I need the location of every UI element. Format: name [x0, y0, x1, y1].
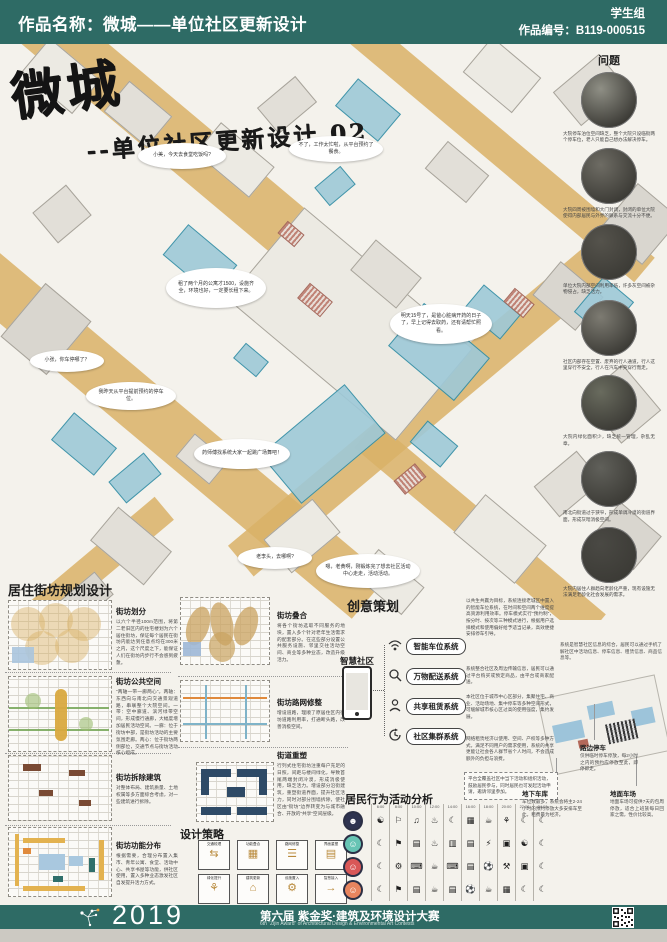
- function-blue: [39, 854, 65, 870]
- strategy-box: 界面重塑▤: [315, 840, 347, 870]
- sleep-icon: ☾: [377, 885, 385, 894]
- activity-cell: ☕: [479, 878, 497, 901]
- sleep-icon: ☾: [377, 839, 385, 848]
- activity-cell: ♨: [425, 809, 443, 832]
- strategy-box: 建筑更新⌂: [237, 874, 269, 904]
- radio-icon: ♫: [413, 816, 419, 825]
- child-avatar: ☺: [345, 882, 361, 898]
- clock-icon: [388, 728, 402, 742]
- connector-line: [384, 645, 385, 736]
- strategy-title: 设计策略: [180, 826, 224, 842]
- function-bar: [23, 886, 85, 891]
- strategy-box: 智慧接入→: [315, 874, 347, 904]
- grey-corridor-photo: [581, 224, 637, 280]
- function-bar: [15, 834, 19, 886]
- activity-cell: ⚐: [389, 809, 407, 832]
- activity-cell: ♫: [407, 809, 425, 832]
- activity-cell: ♨: [425, 832, 443, 855]
- activity-cell: ☾: [533, 855, 551, 878]
- activity-cell: ☾: [371, 878, 389, 901]
- map-public-space: [8, 676, 112, 752]
- nap-icon: ☾: [449, 816, 457, 825]
- problem-caption: 单位大院内部空间利用率低，许多灰空间被杂物侵占，缺乏活力。: [563, 283, 655, 296]
- planning-block-heading: 街坊叠合: [277, 610, 345, 621]
- creative-section-title: 创意策划: [347, 596, 399, 615]
- blue-arrow: [205, 685, 207, 739]
- problem-caption: 大院内居住人群趋向老龄化严重，现有设施无法满足老龄化社会发展的需求。: [563, 586, 655, 599]
- problem-caption: 大院停车泊位空间缺乏，整个大院只设临街两个停车位，老人只能自己想办法解决停车。: [563, 131, 655, 144]
- activity-cell: ☕: [425, 878, 443, 901]
- planning-text-block: 街坊划分以六个半径100m范围，将第二老旧区内的住宅楼划为六个居住街坊，保证每个…: [116, 606, 178, 667]
- phone-home-button: [355, 712, 359, 716]
- strategy-box: 功能叠合▦: [237, 840, 269, 870]
- function-orange: [23, 848, 31, 854]
- activity-cell: ☾: [371, 832, 389, 855]
- callout-body: 车位数最多，系统会将主2-24小时的预约停放大多安排车至此，租费最为经济。: [522, 799, 582, 819]
- function-bar: [23, 838, 65, 843]
- demolished-building: [69, 770, 85, 776]
- elderly-crowd-photo: [581, 527, 637, 583]
- planning-block-heading: 街坊公共空间: [116, 676, 178, 687]
- qr-code: [612, 907, 634, 928]
- activity-cell: ☕: [479, 809, 497, 832]
- planning-section-title: 居住街坊规划设计: [8, 580, 112, 599]
- planning-block-heading: 街道重塑: [277, 750, 345, 761]
- activity-row: ☻☯⚐♫♨☾▦☕⚘☾☾: [345, 809, 551, 832]
- activity-cell: ☾: [533, 878, 551, 901]
- strategy-icon: ☰: [277, 847, 307, 862]
- dotted-divider: [178, 676, 348, 677]
- strategy-icon: →: [316, 881, 346, 896]
- speech-bubble: 明天15号了，是爸心脏病开药的日子了，早上记得去取药，还有请帮忙照看。: [390, 304, 492, 344]
- meeting-icon: ▤: [466, 862, 474, 871]
- activity-cell: ⚘: [497, 809, 515, 832]
- speech-bubble: 我昨天从平台提前预约的停车位。: [86, 382, 176, 410]
- activity-cell: ⚙: [389, 855, 407, 878]
- dotted-divider: [178, 747, 348, 748]
- callout-body: 地面车场可提供7天的包周停放，适合上班族每日回家之需，性价比较高。: [610, 799, 664, 819]
- activity-cell: ☯: [371, 809, 389, 832]
- activity-cell: ▤: [461, 832, 479, 855]
- activity-row: ☺☾⚑▤☕▤⚽☕▦☾☾: [345, 878, 551, 901]
- game-icon: ▦: [502, 885, 510, 894]
- scooter-icon: ⚡: [486, 839, 492, 848]
- planning-text-block: 街坊叠合将各个街坊选取不同服务的地块，置入多个针对老年生活需求的配套部分。在这些…: [277, 610, 345, 664]
- callout-title: 地下车库: [522, 788, 582, 798]
- blue-arrow: [183, 723, 267, 725]
- computer-icon: ⌨: [410, 862, 422, 871]
- activity-cell: ☾: [371, 855, 389, 878]
- system-description: 网络租赁经济以使用、空间、产权等多种方式，满足不同用户的需求使用，系统的共享更能…: [466, 736, 554, 763]
- radius-circle: [55, 629, 89, 663]
- activity-cell: ⚒: [497, 855, 515, 878]
- group-label: 学生组: [611, 5, 646, 21]
- strategy-icon: ⚙: [277, 881, 307, 896]
- messy-green-photo: [581, 375, 637, 431]
- function-teal: [89, 858, 95, 872]
- reading-icon: ▤: [448, 885, 456, 894]
- footer-contest-subtitle: 6th "Zijin Award" of Architectural Desig…: [260, 921, 414, 927]
- plants-icon: ⚘: [503, 816, 511, 825]
- woman-avatar: ☺: [345, 836, 361, 852]
- elderly-avatar: ☻: [345, 813, 361, 829]
- planning-block-body: “两轴一带一廊两心”。两轴：东西向与南北向交通景观道路，串联整个大院空间。一带：…: [116, 689, 178, 757]
- meal-icon: ☕: [431, 885, 439, 894]
- function-blue: [69, 856, 83, 866]
- wifi-icon: [388, 638, 402, 652]
- map-demolition: [8, 755, 112, 821]
- activity-cell: ☾: [515, 878, 533, 901]
- planning-block-body: 以六个半径100m范围，将第二老旧区内的住宅楼划为六个居住街坊，保证每个居民在街…: [116, 619, 178, 667]
- activity-cell: ⌨: [443, 855, 461, 878]
- strategy-icon: ⚘: [199, 881, 229, 896]
- system-description: 本社区位于城市中心区部分，集聚住宅、商业、活动场地、集中停车等多种空间形式，可缓…: [466, 694, 554, 721]
- green-node: [25, 693, 41, 709]
- yellow-spine: [55, 689, 67, 741]
- parking-callout: 路边停车仅供临时停车停放，每2小时之内的预约应停放至此，即停即走。: [580, 742, 638, 773]
- problems-title: 问题: [598, 52, 620, 68]
- strategy-box: 路网修整☰: [276, 840, 308, 870]
- narrow-street-photo: [581, 451, 637, 507]
- activity-cell: ⚽: [461, 878, 479, 901]
- mahjong-icon: ▦: [466, 816, 474, 825]
- street-block: [201, 769, 209, 795]
- poster-main-title: 微城: [5, 41, 126, 131]
- planning-text-block: 街道重塑行列式住宅街坊注重每户充足的日照，间距与楼间绿化，导致首尾两端封闭冷漠，…: [277, 750, 345, 818]
- logo-accent-dot: [97, 909, 100, 912]
- activity-cell: ▤: [461, 855, 479, 878]
- planning-block-heading: 街坊拆除建筑: [116, 772, 178, 783]
- speech-bubble: 老李头，去哪啊?: [238, 547, 312, 569]
- planning-block-body: 根据需要，合理分布置入集市、青年公寓、食堂、活动中心、共享书屋等功能，供社区使用…: [116, 853, 178, 887]
- walled-lane-photo: [581, 148, 637, 204]
- planning-block-body: 将各个街坊选取不同服务的地块，置入多个针对老年生活需求的配套部分。在这些部分设置…: [277, 623, 345, 664]
- blue-structure: [314, 166, 355, 206]
- strategy-box: 绿化提升⚘: [198, 874, 230, 904]
- parking-callout: 地下车库车位数最多，系统会将主2-24小时的预约停放大多安排车至此，租费最为经济…: [522, 788, 582, 819]
- demolished-building: [79, 800, 91, 806]
- parking-zone-blue: [587, 701, 615, 720]
- meal-icon: ☕: [485, 885, 493, 894]
- smartphone-icon: [342, 666, 372, 720]
- street-block: [259, 769, 267, 795]
- activity-row: ☺☾⚙⌨☕⌨▤⚽⚒▣☾: [345, 855, 551, 878]
- planning-block-heading: 街坊功能分布: [116, 840, 178, 851]
- activity-cell: ▦: [497, 878, 515, 901]
- header-bar: 作品名称：微城——单位社区更新设计 学生组 作品编号：B119-000515: [0, 0, 667, 44]
- problem-caption: 南北向街道过于狭窄，形成单调冷漠的街道界面，形成灰暗消极空间。: [563, 510, 655, 523]
- footer-year: 2019: [112, 900, 184, 931]
- sleep-icon: ☾: [539, 885, 547, 894]
- speech-bubble: 小美，今天去食堂吃饭吗?: [138, 143, 226, 169]
- street-block: [227, 787, 245, 797]
- sleep-icon: ☾: [521, 885, 529, 894]
- callout-title: 地面车场: [610, 788, 664, 798]
- activity-cell: ⚡: [479, 832, 497, 855]
- activity-cell: ⚑: [389, 832, 407, 855]
- shopping-icon: ▥: [448, 839, 456, 848]
- blue-structure: [233, 343, 269, 378]
- callout-title: 路边停车: [580, 742, 638, 752]
- commute-icon: ⚑: [395, 839, 403, 848]
- activity-cell: ☯: [515, 832, 533, 855]
- planning-block-body: 对整体布局、建筑质量、土地权属等多方面综合考虑，对一些建筑进行拆除。: [116, 785, 178, 805]
- street-parking-photo: [581, 72, 637, 128]
- planning-block-body: 增设道路，理顺了原居住区内街坊道路利用率，打通断头路，改善消极空间。: [277, 710, 345, 730]
- speech-bubble: 小张，你车停哪了？: [30, 350, 104, 372]
- gym-icon: ⚒: [503, 862, 511, 871]
- speech-bubble: 租了两个月的公寓才1500，设施齐全，环境也好，一定要长租下来。: [166, 268, 266, 308]
- work-number: 作品编号：B119-000515: [518, 22, 645, 38]
- cook-icon: ♨: [431, 816, 439, 825]
- map-street-reshape: [196, 762, 274, 822]
- strategy-icon: ▤: [316, 847, 346, 862]
- strategy-icon: ▦: [238, 847, 268, 862]
- sleep-icon: ☾: [377, 862, 385, 871]
- dotted-divider: [5, 672, 171, 673]
- activity-cell: ▤: [407, 832, 425, 855]
- map-function-distribution: [8, 827, 112, 897]
- sleep-icon: ☾: [539, 862, 547, 871]
- parking-callout: 地面车场地面车场可提供7天的包周停放，适合上班族每日回家之需，性价比较高。: [610, 788, 664, 819]
- activity-cell: ⚽: [479, 855, 497, 878]
- map-road-network: [180, 680, 270, 742]
- activity-cell: ▥: [443, 832, 461, 855]
- system-pill: 智能车位系统: [406, 638, 466, 655]
- planning-block-heading: 街坊路网修整: [277, 697, 345, 708]
- taichi-icon: ☯: [377, 816, 385, 825]
- zijin-award-logo: [72, 907, 108, 927]
- activity-row: ☺☾⚑▤♨▥▤⚡▣☯☾: [345, 832, 551, 855]
- blue-structure: [51, 412, 117, 476]
- map-block-division: [8, 600, 112, 670]
- function-teal: [53, 876, 63, 882]
- computer-icon: ⌨: [446, 862, 458, 871]
- demolished-building: [39, 790, 53, 796]
- strategy-icon: ⇆: [199, 847, 229, 862]
- stroll-icon: ⚐: [395, 816, 403, 825]
- poster: 作品名称：微城——单位社区更新设计 学生组 作品编号：B119-000515 微…: [0, 0, 667, 942]
- drive-icon: ⚙: [395, 862, 403, 871]
- problems-column: 问题 大院停车泊位空间缺乏，整个大院只设临街两个停车位，老人只能自己想办法解决停…: [556, 52, 662, 603]
- reading-icon: ▤: [412, 885, 420, 894]
- work-title: 作品名称：微城——单位社区更新设计: [18, 11, 307, 35]
- dotted-divider: [5, 825, 171, 826]
- soccer-icon: ⚽: [465, 885, 476, 894]
- planning-text-block: 街坊路网修整增设道路，理顺了原居住区内街坊道路利用率，打通断头路，改善消极空间。: [277, 697, 345, 730]
- meal-icon: ☕: [431, 862, 439, 871]
- planning-block-heading: 街坊划分: [116, 606, 178, 617]
- activity-cell: ☕: [425, 855, 443, 878]
- system-pill: 共享租赁系统: [406, 698, 466, 715]
- blue-parcel: [183, 642, 201, 656]
- speech-bubble: 嗯，老黄啊，刚锻炼完了想去社区活动中心走走，活动活动。: [316, 554, 420, 588]
- problem-caption: 社区内部存在空置、废弃的行人通道，行人这里穿行不安全，行人在汽车中央穿行而走。: [563, 359, 655, 372]
- street-block: [237, 807, 267, 815]
- blue-arrow: [245, 685, 247, 739]
- map-overlay-leaves: [180, 597, 270, 665]
- system-description: 以共生共赢为目标，系统连接老城区中置入的智能车位系统，在时间和空间两个维度提高资…: [466, 598, 554, 638]
- activity-cell: ▣: [497, 832, 515, 855]
- sleep-icon: ☾: [539, 839, 547, 848]
- work-doc-icon: ▤: [412, 839, 420, 848]
- system-pill: 社区集群系统: [406, 728, 466, 745]
- planning-text-block: 街坊功能分布根据需要，合理分布置入集市、青年公寓、食堂、活动中心、共享书屋等功能…: [116, 840, 178, 887]
- speech-bubble: 药师傅找系统大家一起跳广场舞吧！: [194, 439, 290, 469]
- blue-parcel: [12, 647, 34, 663]
- activity-cell: ▤: [407, 878, 425, 901]
- callout-line: [594, 704, 595, 740]
- callout-body: 仅供临时停车停放，每2小时之内的预约应停放至此，即停即走。: [580, 753, 638, 773]
- activity-cell: ⚑: [389, 878, 407, 901]
- orange-arrow: [183, 697, 267, 699]
- cars-on-road-photo: [581, 300, 637, 356]
- man-avatar: ☺: [345, 859, 361, 875]
- person-icon: [388, 698, 402, 712]
- activity-cell: ⌨: [407, 855, 425, 878]
- system-description: 系统整合社区及周边传输信息，居民可以通过平台购买或预定商品，由平台或商家配送。: [466, 666, 554, 686]
- function-bar: [99, 840, 104, 880]
- demolished-building: [23, 764, 41, 771]
- bottom-margin-strip: [0, 929, 667, 942]
- footer-bar: 2019 第六届 紫金奖·建筑及环境设计大赛 6th "Zijin Award"…: [0, 905, 667, 929]
- activity-cell: ☾: [533, 832, 551, 855]
- activity-table: 6:008:0010:0012:0014:0016:0018:0020:0022…: [345, 804, 551, 901]
- magnifier-icon: [388, 668, 402, 682]
- system-pill: 万物配送系统: [406, 668, 466, 685]
- speech-bubble: 不了，工作太忙啦，从平台预约了餐食。: [289, 136, 383, 162]
- strategy-box: 交通梳理⇆: [198, 840, 230, 870]
- problem-caption: 大院四周被围墙和大门封闭，封闭的单位大院使得内部居民与外界的联系与交流十分不便。: [563, 207, 655, 220]
- parking-hatch-zone: [605, 719, 639, 745]
- planning-text-block: 街坊拆除建筑对整体布局、建筑质量、土地权属等多方面综合考虑，对一些建筑进行拆除。: [116, 772, 178, 805]
- building-block: [463, 44, 542, 113]
- problem-caption: 大院内绿化面积少，缺乏统一管理，杂乱无章。: [563, 434, 655, 447]
- work-doc-icon: ▤: [466, 839, 474, 848]
- yoga-icon: ☯: [521, 839, 529, 848]
- systems-summary-note: 系统是智慧社区信息的综合，居民可以通过手机了解社区中活动信息、停车信息、租赁信息…: [560, 642, 662, 662]
- school-icon: ⚑: [395, 885, 403, 894]
- green-node: [79, 717, 93, 731]
- basketball-icon: ⚽: [483, 862, 494, 871]
- meal-icon: ☕: [485, 816, 493, 825]
- activity-cell: ▤: [443, 878, 461, 901]
- strategy-box: 设施置入⚙: [276, 874, 308, 904]
- planning-block-body: 行列式住宅街坊注重每户充足的日照，间距与楼间绿化，导致首尾两端封闭冷漠，形成消极…: [277, 763, 345, 818]
- planning-text-block: 街坊公共空间“两轴一带一廊两心”。两轴：东西向与南北向交通景观道路，串联整个大院…: [116, 676, 178, 757]
- activity-cell: ☾: [443, 809, 461, 832]
- tv-icon: ▣: [520, 862, 528, 871]
- activity-cell: ▦: [461, 809, 479, 832]
- street-block: [201, 807, 231, 815]
- phone-screen: [346, 673, 368, 710]
- strategy-icon: ⌂: [238, 881, 268, 896]
- activity-cell: ▣: [515, 855, 533, 878]
- tv-icon: ▣: [502, 839, 510, 848]
- cook-icon: ♨: [431, 839, 439, 848]
- building-block: [32, 185, 91, 244]
